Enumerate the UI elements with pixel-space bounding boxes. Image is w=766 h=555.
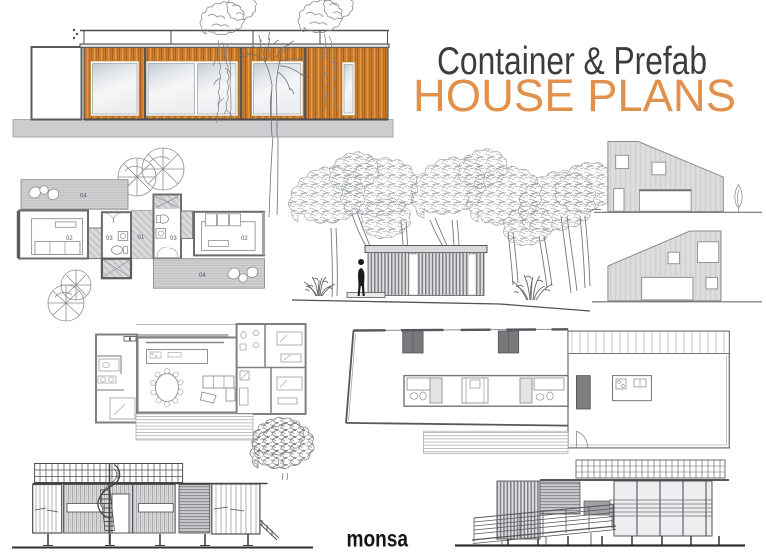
svg-text:03: 03 (170, 236, 177, 242)
svg-text:04: 04 (80, 194, 87, 200)
svg-text:03: 03 (106, 236, 113, 242)
svg-text:01: 01 (138, 235, 145, 241)
svg-text:02: 02 (66, 236, 73, 242)
svg-text:monsa: monsa (347, 526, 409, 552)
svg-text:04: 04 (199, 273, 206, 279)
svg-text:HOUSE PLANS: HOUSE PLANS (413, 70, 736, 121)
svg-text:02: 02 (241, 236, 248, 242)
